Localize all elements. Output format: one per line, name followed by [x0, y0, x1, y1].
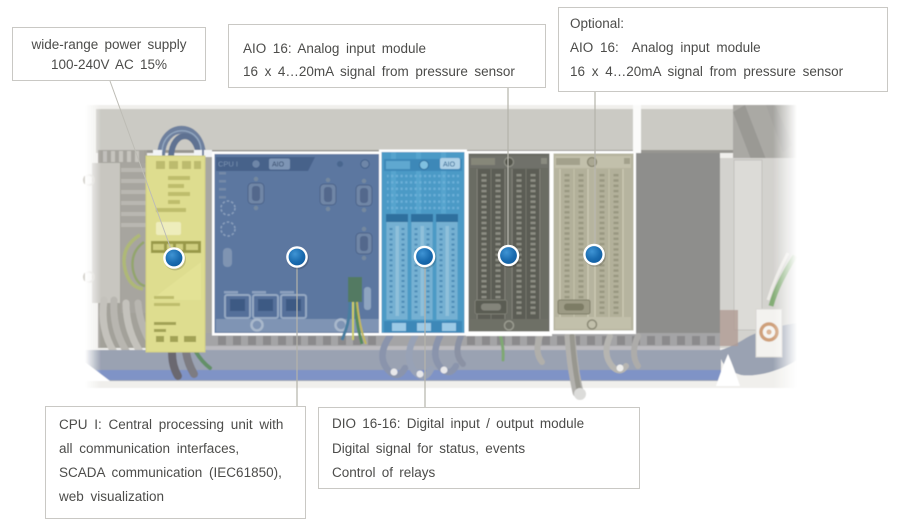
svg-text:CPU I: CPU I: [218, 160, 238, 169]
svg-text:AIO: AIO: [272, 162, 285, 169]
svg-text:AIO: AIO: [443, 162, 456, 169]
